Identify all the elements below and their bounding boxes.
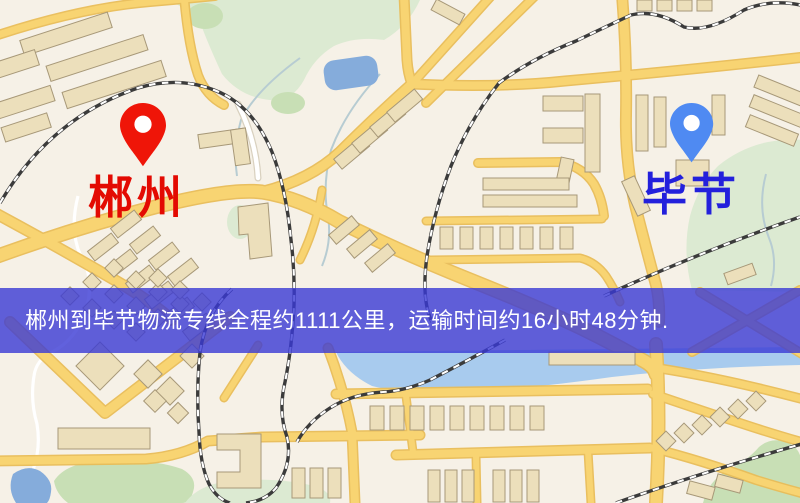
map-canvas xyxy=(0,0,800,503)
map-screenshot: 郴州 毕节 郴州到毕节物流专线全程约1111公里，运输时间约16小时48分钟. xyxy=(0,0,800,503)
route-info-text: 郴州到毕节物流专线全程约1111公里，运输时间约16小时48分钟. xyxy=(25,308,669,333)
destination-city-label: 毕节 xyxy=(642,173,740,218)
route-info-banner: 郴州到毕节物流专线全程约1111公里，运输时间约16小时48分钟. xyxy=(0,288,800,353)
origin-city-label: 郴州 xyxy=(88,176,186,221)
